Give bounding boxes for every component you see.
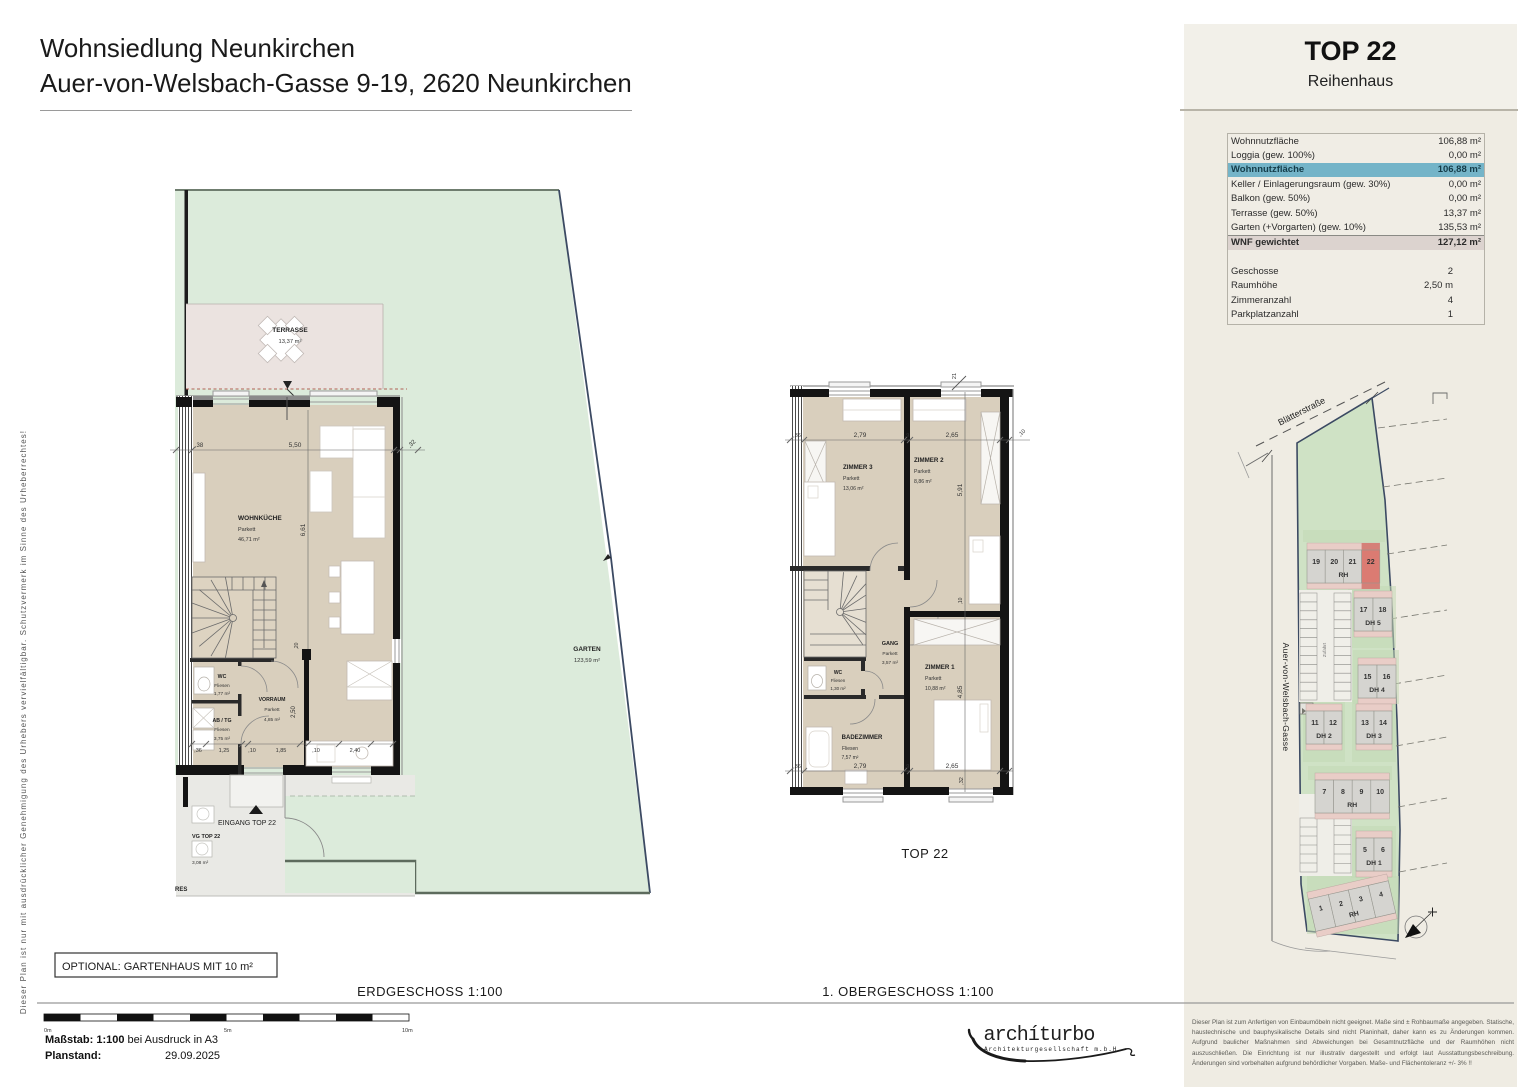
svg-text:2,79: 2,79 bbox=[854, 432, 867, 439]
svg-text:,9: ,9 bbox=[905, 433, 910, 439]
svg-text:5,50: 5,50 bbox=[289, 442, 302, 449]
svg-text:2,65: 2,65 bbox=[946, 763, 959, 770]
svg-text:GANG: GANG bbox=[882, 641, 899, 647]
svg-text:2,40: 2,40 bbox=[350, 748, 361, 754]
svg-text:VG TOP 22: VG TOP 22 bbox=[192, 834, 220, 840]
svg-text:20: 20 bbox=[1330, 559, 1338, 566]
svg-text:DH 3: DH 3 bbox=[1366, 733, 1382, 740]
svg-text:Auer-von-Welsbach-Gasse: Auer-von-Welsbach-Gasse bbox=[1281, 643, 1291, 752]
svg-text:,20: ,20 bbox=[294, 642, 300, 649]
svg-text:7,57 m²: 7,57 m² bbox=[842, 755, 859, 761]
svg-text:3,08 m²: 3,08 m² bbox=[192, 860, 209, 866]
svg-text:Parkett: Parkett bbox=[914, 469, 931, 475]
svg-text:10m: 10m bbox=[402, 1028, 413, 1034]
svg-text:Parkett: Parkett bbox=[264, 707, 280, 713]
svg-text:4,85 m²: 4,85 m² bbox=[264, 717, 281, 723]
svg-text:3,57 m²: 3,57 m² bbox=[882, 660, 899, 666]
svg-text:46,71 m²: 46,71 m² bbox=[238, 537, 260, 543]
svg-text:1,77 m²: 1,77 m² bbox=[214, 691, 231, 697]
svg-text:VORRAUM: VORRAUM bbox=[259, 697, 286, 703]
svg-text:DH 5: DH 5 bbox=[1365, 620, 1381, 627]
svg-text:10: 10 bbox=[1376, 789, 1384, 796]
svg-text:,36: ,36 bbox=[793, 433, 801, 439]
svg-text:Fliesen: Fliesen bbox=[214, 727, 230, 733]
svg-text:18: 18 bbox=[1379, 607, 1387, 614]
svg-text:EINGANG TOP 22: EINGANG TOP 22 bbox=[218, 820, 276, 827]
svg-text:5,91: 5,91 bbox=[957, 483, 964, 496]
svg-text:ZIMMER 1: ZIMMER 1 bbox=[925, 664, 955, 671]
svg-text:5m: 5m bbox=[224, 1028, 232, 1034]
svg-text:7: 7 bbox=[1322, 789, 1326, 796]
svg-text:,38: ,38 bbox=[195, 443, 204, 449]
svg-text:12: 12 bbox=[1329, 720, 1337, 727]
svg-text:WC: WC bbox=[218, 674, 227, 680]
svg-text:Blätterstraße: Blätterstraße bbox=[1276, 395, 1326, 427]
svg-text:,32: ,32 bbox=[959, 777, 965, 785]
svg-text:13,37 m²: 13,37 m² bbox=[279, 339, 302, 345]
svg-text:BADEZIMMER: BADEZIMMER bbox=[842, 735, 883, 741]
svg-text:123,59 m²: 123,59 m² bbox=[574, 658, 600, 664]
svg-text:,9: ,9 bbox=[905, 764, 910, 770]
svg-text:OPTIONAL: GARTENHAUS MIT 10 m²: OPTIONAL: GARTENHAUS MIT 10 m² bbox=[62, 961, 253, 973]
svg-text:WOHNKÜCHE: WOHNKÜCHE bbox=[238, 513, 282, 522]
svg-text:TERRASSE: TERRASSE bbox=[272, 327, 308, 334]
svg-text:1,30 m²: 1,30 m² bbox=[830, 686, 846, 691]
svg-text:8,86 m²: 8,86 m² bbox=[914, 479, 932, 485]
svg-text:archíturbo: archíturbo bbox=[983, 1024, 1094, 1047]
svg-text:Parkett: Parkett bbox=[925, 676, 942, 682]
svg-text:1,85: 1,85 bbox=[276, 748, 287, 754]
svg-text:13,06 m²: 13,06 m² bbox=[843, 486, 864, 492]
svg-text:21: 21 bbox=[1349, 559, 1357, 566]
svg-text:5: 5 bbox=[1363, 847, 1367, 854]
svg-text:,10: ,10 bbox=[312, 748, 320, 754]
svg-text:,36: ,36 bbox=[793, 764, 801, 770]
svg-text:,10: ,10 bbox=[958, 597, 964, 604]
svg-text:ZIMMER 2: ZIMMER 2 bbox=[914, 457, 944, 464]
svg-text:16: 16 bbox=[1383, 674, 1391, 681]
svg-text:,10: ,10 bbox=[1017, 428, 1027, 438]
svg-text:DH 2: DH 2 bbox=[1316, 733, 1332, 740]
svg-text:RES: RES bbox=[175, 887, 187, 893]
svg-text:0m: 0m bbox=[44, 1028, 52, 1034]
svg-text:6: 6 bbox=[1381, 847, 1385, 854]
svg-text:,10: ,10 bbox=[248, 748, 256, 754]
svg-text:11: 11 bbox=[1311, 720, 1319, 727]
svg-text:Fliesen: Fliesen bbox=[214, 683, 230, 689]
svg-text:DH 4: DH 4 bbox=[1369, 687, 1385, 694]
svg-text:Dieser Plan ist nur mit ausdrü: Dieser Plan ist nur mit ausdrücklicher G… bbox=[19, 430, 28, 1014]
svg-text:15: 15 bbox=[1364, 674, 1372, 681]
svg-text:21: 21 bbox=[952, 373, 958, 379]
svg-text:4,85: 4,85 bbox=[957, 685, 964, 698]
svg-text:10,88 m²: 10,88 m² bbox=[925, 686, 946, 692]
svg-text:2,50: 2,50 bbox=[291, 706, 297, 718]
svg-text:Architekturgesellschaft m.b.H.: Architekturgesellschaft m.b.H. bbox=[984, 1046, 1122, 1053]
svg-text:3,75 m²: 3,75 m² bbox=[214, 736, 231, 742]
svg-text:RH: RH bbox=[1338, 572, 1348, 579]
svg-text:Parkett: Parkett bbox=[843, 476, 860, 482]
svg-text:Fliesen: Fliesen bbox=[842, 746, 858, 752]
svg-text:8: 8 bbox=[1341, 789, 1345, 796]
svg-text:13: 13 bbox=[1361, 720, 1369, 727]
svg-text:2,79: 2,79 bbox=[854, 763, 867, 770]
svg-text:GARTEN: GARTEN bbox=[573, 646, 601, 653]
svg-text:1,25: 1,25 bbox=[219, 748, 230, 754]
svg-text:Fliesen: Fliesen bbox=[831, 678, 846, 683]
svg-text:2,65: 2,65 bbox=[946, 432, 959, 439]
svg-text:19: 19 bbox=[1312, 559, 1320, 566]
svg-text:WC: WC bbox=[834, 670, 843, 676]
svg-text:Zufahrt: Zufahrt bbox=[1322, 642, 1327, 657]
svg-text:17: 17 bbox=[1360, 607, 1368, 614]
svg-text:Parkett: Parkett bbox=[238, 527, 256, 533]
svg-text:ZIMMER 3: ZIMMER 3 bbox=[843, 464, 873, 471]
svg-text:RH: RH bbox=[1347, 802, 1357, 809]
svg-text:,36: ,36 bbox=[194, 748, 202, 754]
svg-text:22: 22 bbox=[1367, 559, 1375, 566]
svg-text:9: 9 bbox=[1360, 789, 1364, 796]
svg-text:6,61: 6,61 bbox=[300, 523, 307, 536]
svg-text:Parkett: Parkett bbox=[882, 651, 898, 657]
svg-text:14: 14 bbox=[1379, 720, 1387, 727]
svg-text:AB / TG: AB / TG bbox=[212, 718, 231, 724]
svg-text:DH 1: DH 1 bbox=[1366, 860, 1382, 867]
